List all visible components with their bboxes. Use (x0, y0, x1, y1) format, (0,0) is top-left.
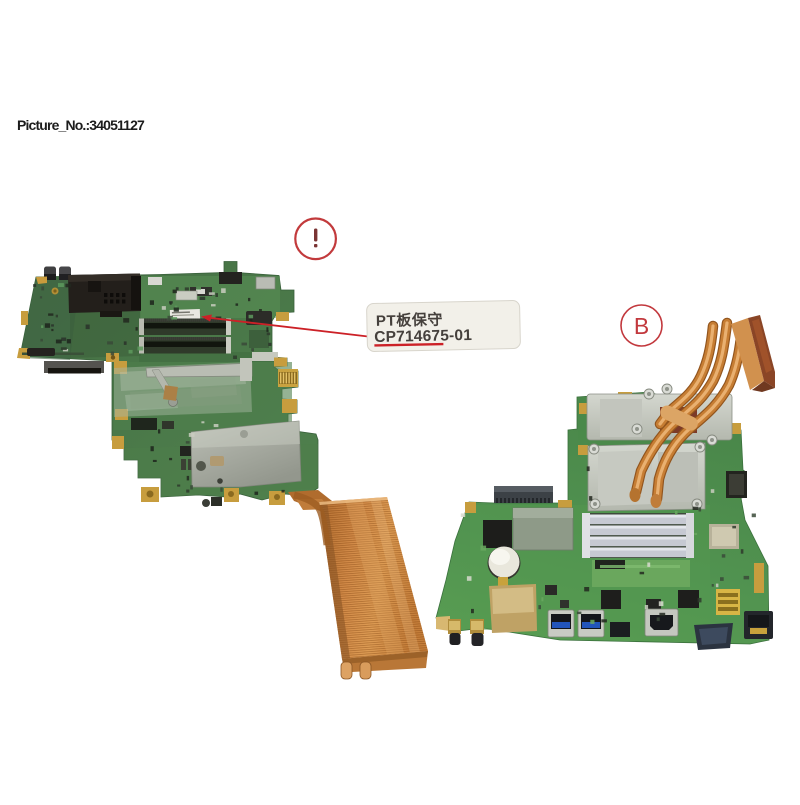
svg-text:Picture_No.:34051127: Picture_No.:34051127 (17, 117, 145, 133)
svg-text:B: B (634, 313, 649, 339)
svg-text:CP714675-01: CP714675-01 (374, 327, 472, 346)
